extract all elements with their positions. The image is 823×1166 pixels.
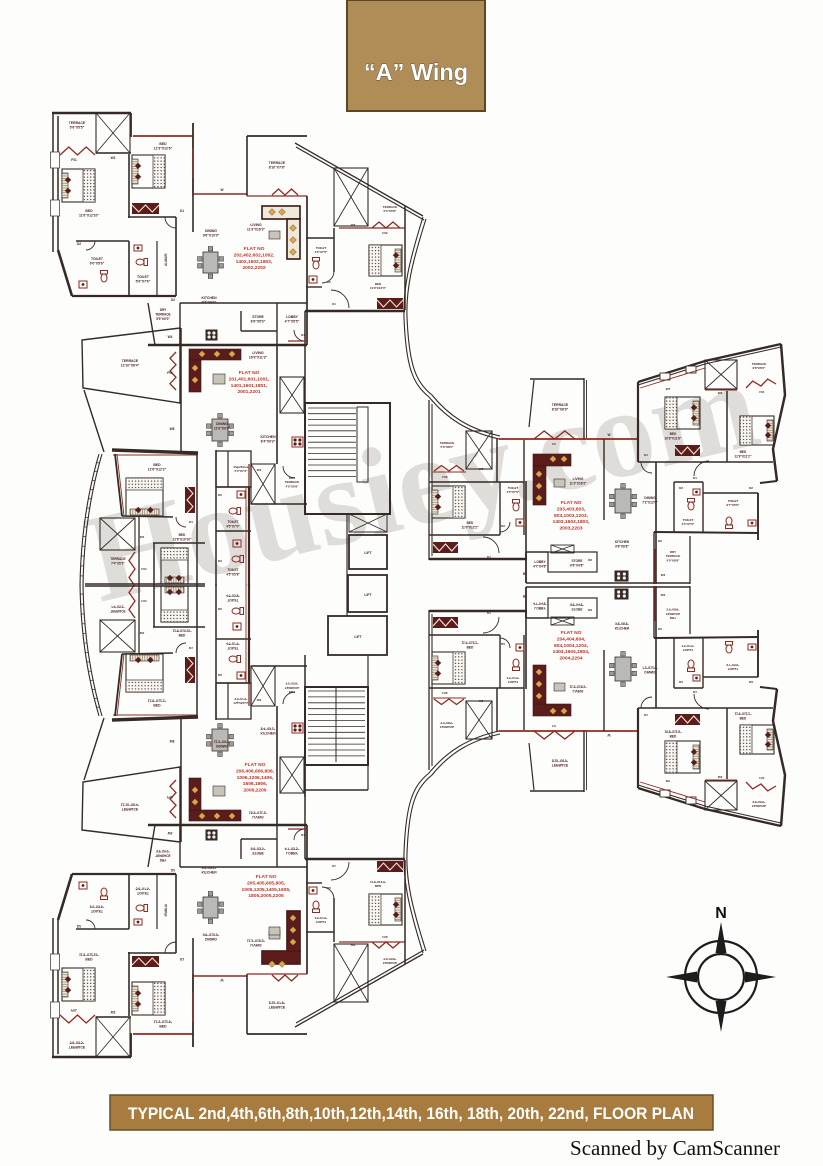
- svg-text:D1: D1: [189, 520, 193, 524]
- svg-text:ALMARI: ALMARI: [164, 253, 168, 266]
- svg-text:STORE6'6"X5'0": STORE6'6"X5'0": [251, 315, 266, 324]
- svg-text:TOILET9'0"X5'6": TOILET9'0"X5'6": [90, 257, 105, 266]
- svg-text:W8: W8: [170, 427, 175, 431]
- svg-text:D2: D2: [218, 559, 222, 563]
- svg-text:TOILET9'7"X5'6": TOILET9'7"X5'6": [727, 499, 741, 507]
- svg-text:LIFT: LIFT: [364, 551, 372, 555]
- svg-text:W3: W3: [479, 467, 484, 471]
- svg-text:D2: D2: [171, 298, 175, 302]
- svg-text:F01: F01: [759, 390, 765, 394]
- svg-text:W4: W4: [661, 573, 666, 577]
- svg-text:D2: D2: [218, 493, 222, 497]
- svg-text:LIFT: LIFT: [354, 635, 362, 639]
- svg-text:D2: D2: [658, 539, 662, 543]
- svg-text:TYPICAL 2nd,4th,6th,8th,10th,1: TYPICAL 2nd,4th,6th,8th,10th,12th,14th, …: [128, 1105, 694, 1123]
- svg-text:W7: W7: [666, 387, 671, 391]
- svg-text:F01: F01: [71, 158, 77, 162]
- svg-text:Puja/Store5'3"X7'3": Puja/Store5'3"X7'3": [234, 465, 249, 473]
- svg-text:TERRACE9'8"X6'0": TERRACE9'8"X6'0": [752, 362, 767, 370]
- svg-text:D1: D1: [332, 302, 336, 306]
- svg-text:LIFT: LIFT: [364, 593, 372, 597]
- svg-text:D2: D2: [501, 524, 505, 528]
- svg-text:TERRACE12'10"X8'4": TERRACE12'10"X8'4": [121, 359, 140, 368]
- svg-text:“A” Wing: “A” Wing: [364, 59, 468, 85]
- svg-text:W: W: [607, 433, 610, 437]
- svg-text:LOBBY4'7"X4'8": LOBBY4'7"X4'8": [533, 560, 547, 568]
- svg-text:D3: D3: [588, 558, 592, 562]
- svg-text:TOILET4'6"X7'6": TOILET4'6"X7'6": [315, 246, 329, 254]
- svg-text:W2: W2: [111, 156, 116, 160]
- svg-text:F04: F04: [141, 567, 147, 571]
- svg-text:D1: D1: [644, 453, 648, 457]
- svg-text:KITCHEN9'8"X8'8": KITCHEN9'8"X8'8": [615, 540, 630, 548]
- svg-text:D2: D2: [749, 486, 753, 490]
- svg-text:F03: F03: [167, 371, 173, 375]
- svg-text:KITCHEN8'4"X9'3": KITCHEN8'4"X9'3": [260, 435, 276, 444]
- svg-text:LOBBY4'7"X5'5": LOBBY4'7"X5'5": [285, 315, 300, 324]
- svg-text:TOILET4'5"X7'0": TOILET4'5"X7'0": [226, 520, 240, 528]
- svg-text:W2: W2: [718, 391, 723, 395]
- svg-text:W4: W4: [140, 535, 145, 539]
- svg-text:Scanned by CamScanner: Scanned by CamScanner: [570, 1136, 780, 1160]
- svg-text:TOILET4'5"X7'6": TOILET4'5"X7'6": [507, 486, 521, 494]
- svg-text:D1: D1: [301, 333, 305, 337]
- svg-text:F02: F02: [442, 475, 448, 479]
- svg-text:TERRACE5'3"X8'5": TERRACE5'3"X8'5": [440, 441, 455, 449]
- svg-text:TOILET5'6"X7'6": TOILET5'6"X7'6": [136, 275, 151, 284]
- svg-text:D2: D2: [77, 242, 81, 246]
- svg-text:D1: D1: [693, 476, 697, 480]
- svg-text:TOILET4'5"X5'8": TOILET4'5"X5'8": [226, 568, 240, 576]
- svg-text:W: W: [220, 188, 223, 192]
- svg-text:D1: D1: [180, 209, 184, 213]
- svg-text:F02: F02: [382, 231, 388, 235]
- svg-text:F0: F0: [552, 442, 556, 446]
- svg-text:N: N: [715, 905, 727, 922]
- svg-text:TERRACE5'3"X5'8": TERRACE5'3"X5'8": [383, 205, 398, 213]
- svg-text:W3: W3: [351, 223, 356, 227]
- svg-text:TERRACE5'6"X5'5": TERRACE5'6"X5'5": [69, 121, 86, 130]
- svg-text:TERRACE8'10"X8'9": TERRACE8'10"X8'9": [552, 403, 569, 412]
- svg-text:STORE6'6"X4'8": STORE6'6"X4'8": [570, 559, 584, 567]
- svg-text:TOILET4'5"X7'6": TOILET4'5"X7'6": [682, 518, 696, 526]
- svg-text:TERRACE7'4"X5'2": TERRACE7'4"X5'2": [110, 557, 125, 565]
- svg-text:W4: W4: [257, 468, 262, 472]
- svg-text:D2: D2: [679, 486, 683, 490]
- svg-text:TERRACE8'10"X7'8": TERRACE8'10"X7'8": [269, 161, 286, 170]
- svg-text:W4: W4: [168, 335, 173, 339]
